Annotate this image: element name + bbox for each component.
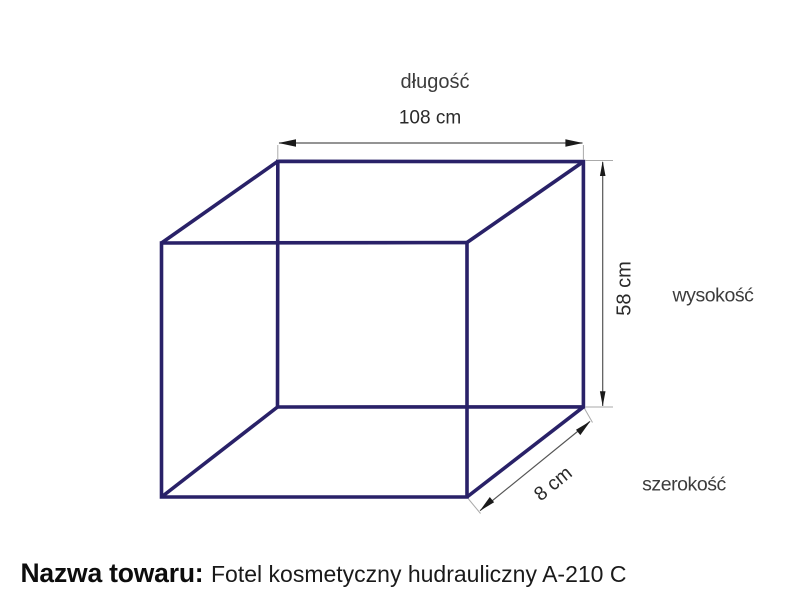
svg-text:długość: długość [401,71,470,93]
svg-text:Fotel kosmetyczny hudrauliczny: Fotel kosmetyczny hudrauliczny A-210 C [211,561,626,587]
svg-text:wysokość: wysokość [672,284,755,306]
svg-text:58 cm: 58 cm [614,261,636,315]
svg-text:108 cm: 108 cm [399,108,461,129]
svg-text:Nazwa towaru:: Nazwa towaru: [21,558,204,588]
svg-text:szerokość: szerokość [642,474,726,496]
